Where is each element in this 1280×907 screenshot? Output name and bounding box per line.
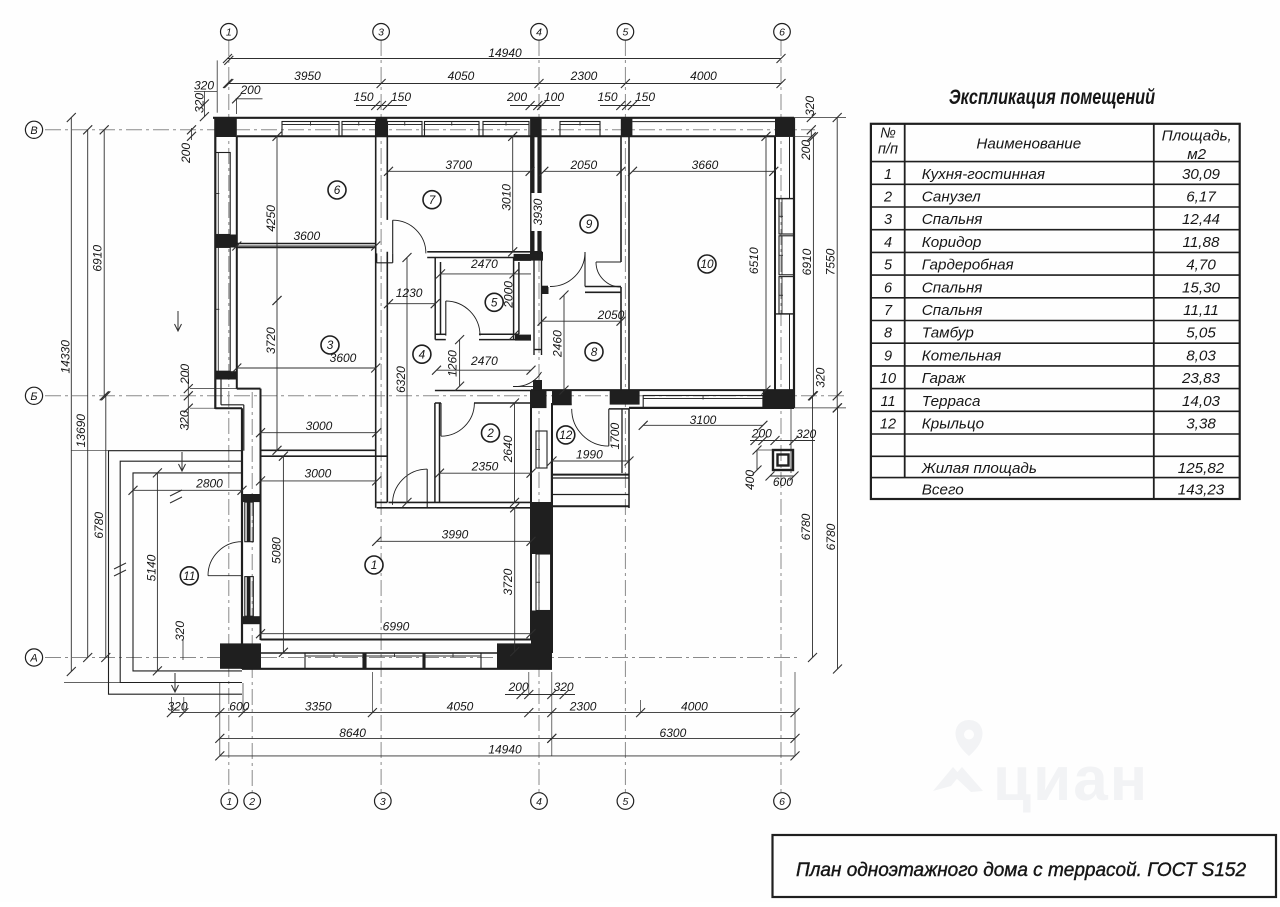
svg-text:4000: 4000 xyxy=(681,700,708,714)
svg-text:4250: 4250 xyxy=(264,205,278,232)
svg-text:5: 5 xyxy=(622,27,628,39)
svg-text:1: 1 xyxy=(371,558,378,572)
svg-text:Спальня: Спальня xyxy=(922,279,983,296)
svg-text:3,38: 3,38 xyxy=(1186,416,1216,433)
svg-text:320: 320 xyxy=(177,410,191,430)
svg-text:Тамбур: Тамбур xyxy=(922,325,974,342)
svg-text:1: 1 xyxy=(226,27,232,39)
svg-text:23,83: 23,83 xyxy=(1181,370,1221,387)
svg-text:9: 9 xyxy=(586,217,593,231)
svg-text:200: 200 xyxy=(506,90,527,104)
svg-text:Санузел: Санузел xyxy=(922,189,981,206)
svg-text:200: 200 xyxy=(179,143,193,164)
svg-text:5140: 5140 xyxy=(144,554,158,581)
svg-text:320: 320 xyxy=(194,79,214,93)
svg-text:6780: 6780 xyxy=(824,523,838,550)
svg-text:320: 320 xyxy=(554,680,574,694)
svg-text:1: 1 xyxy=(884,167,892,183)
svg-text:Б: Б xyxy=(30,391,37,403)
svg-text:План одноэтажного дома с терра: План одноэтажного дома с террасой. ГОСТ … xyxy=(796,860,1247,881)
svg-text:150: 150 xyxy=(391,90,411,104)
svg-text:8: 8 xyxy=(884,326,892,342)
svg-text:5: 5 xyxy=(622,796,628,808)
svg-text:2800: 2800 xyxy=(195,476,223,490)
svg-text:5: 5 xyxy=(491,296,498,310)
svg-text:4050: 4050 xyxy=(448,69,475,83)
svg-text:8640: 8640 xyxy=(339,726,366,740)
svg-text:4: 4 xyxy=(884,235,892,251)
svg-text:Наименование: Наименование xyxy=(976,136,1081,153)
svg-text:7550: 7550 xyxy=(824,248,838,275)
svg-text:3990: 3990 xyxy=(442,528,469,542)
svg-text:4000: 4000 xyxy=(690,69,717,83)
svg-text:2640: 2640 xyxy=(501,435,515,463)
svg-text:10: 10 xyxy=(700,257,714,271)
svg-text:Кухня-гостинная: Кухня-гостинная xyxy=(922,166,1045,183)
svg-text:6320: 6320 xyxy=(394,366,408,393)
svg-text:5: 5 xyxy=(884,258,893,274)
svg-text:14940: 14940 xyxy=(488,46,522,60)
svg-text:4: 4 xyxy=(419,347,426,361)
svg-text:3100: 3100 xyxy=(690,413,717,427)
svg-text:2300: 2300 xyxy=(570,69,598,83)
svg-text:4: 4 xyxy=(536,27,542,39)
svg-text:13690: 13690 xyxy=(74,414,88,448)
svg-text:6300: 6300 xyxy=(660,726,687,740)
svg-text:5,05: 5,05 xyxy=(1186,325,1216,342)
svg-text:9: 9 xyxy=(884,348,892,364)
svg-text:циан: циан xyxy=(993,745,1149,814)
svg-text:143,23: 143,23 xyxy=(1178,482,1225,499)
svg-text:Котельная: Котельная xyxy=(922,347,1001,364)
svg-text:Коридор: Коридор xyxy=(922,234,982,251)
svg-text:В: В xyxy=(30,125,37,137)
svg-text:200: 200 xyxy=(799,140,813,161)
svg-text:6: 6 xyxy=(779,27,785,39)
svg-text:320: 320 xyxy=(173,621,187,641)
svg-text:3000: 3000 xyxy=(305,467,332,481)
svg-text:3: 3 xyxy=(378,27,384,39)
svg-text:320: 320 xyxy=(813,367,827,387)
svg-text:4: 4 xyxy=(536,796,542,808)
svg-text:Крыльцо: Крыльцо xyxy=(922,416,984,433)
svg-text:3: 3 xyxy=(380,796,386,808)
svg-text:Гараж: Гараж xyxy=(922,370,966,387)
svg-text:7: 7 xyxy=(429,193,436,207)
svg-text:320: 320 xyxy=(796,427,816,441)
svg-text:6990: 6990 xyxy=(383,620,410,634)
svg-text:6780: 6780 xyxy=(92,512,106,539)
svg-text:Гардеробная: Гардеробная xyxy=(922,257,1014,274)
svg-text:1700: 1700 xyxy=(608,423,622,450)
svg-text:3: 3 xyxy=(327,338,334,352)
svg-text:30,09: 30,09 xyxy=(1182,166,1221,183)
svg-text:2350: 2350 xyxy=(471,459,499,473)
svg-text:11,11: 11,11 xyxy=(1183,302,1219,319)
svg-text:п/п: п/п xyxy=(878,142,898,158)
svg-text:3700: 3700 xyxy=(445,158,472,172)
svg-text:2300: 2300 xyxy=(569,700,597,714)
svg-text:Жилая площадь: Жилая площадь xyxy=(921,460,1037,477)
svg-text:12,44: 12,44 xyxy=(1182,211,1220,228)
svg-text:Спальня: Спальня xyxy=(922,302,983,319)
svg-text:2: 2 xyxy=(883,190,892,206)
svg-text:150: 150 xyxy=(597,90,617,104)
svg-text:2460: 2460 xyxy=(551,330,565,358)
svg-text:№: № xyxy=(880,126,896,142)
svg-text:3000: 3000 xyxy=(306,419,333,433)
svg-text:12: 12 xyxy=(559,428,573,442)
svg-text:2470: 2470 xyxy=(470,354,498,368)
svg-text:7: 7 xyxy=(884,303,893,319)
svg-text:100: 100 xyxy=(544,90,564,104)
svg-text:1: 1 xyxy=(226,796,232,808)
svg-text:Экспликация помещений: Экспликация помещений xyxy=(949,86,1156,110)
svg-text:8,03: 8,03 xyxy=(1186,347,1216,364)
svg-text:6: 6 xyxy=(334,183,341,197)
svg-text:3350: 3350 xyxy=(305,700,332,714)
svg-text:1230: 1230 xyxy=(396,286,423,300)
svg-text:6910: 6910 xyxy=(91,245,105,272)
svg-text:4,70: 4,70 xyxy=(1186,257,1216,274)
svg-text:150: 150 xyxy=(353,90,373,104)
svg-text:150: 150 xyxy=(635,90,655,104)
svg-text:2050: 2050 xyxy=(569,158,597,172)
svg-text:Всего: Всего xyxy=(922,482,964,499)
svg-text:200: 200 xyxy=(508,680,529,694)
svg-text:600: 600 xyxy=(773,475,793,489)
svg-text:6,17: 6,17 xyxy=(1186,189,1216,206)
svg-text:6: 6 xyxy=(884,280,893,296)
svg-text:15,30: 15,30 xyxy=(1182,279,1221,296)
svg-text:Площадь,: Площадь, xyxy=(1162,128,1232,145)
svg-text:11: 11 xyxy=(880,394,895,410)
svg-text:11: 11 xyxy=(183,569,195,583)
svg-text:3660: 3660 xyxy=(692,158,719,172)
svg-text:А: А xyxy=(29,652,37,664)
svg-text:4050: 4050 xyxy=(447,700,474,714)
svg-text:200: 200 xyxy=(239,83,260,97)
svg-text:3: 3 xyxy=(884,212,892,228)
svg-text:2: 2 xyxy=(248,796,255,808)
svg-text:3950: 3950 xyxy=(294,69,321,83)
svg-text:125,82: 125,82 xyxy=(1178,460,1225,477)
svg-text:3930: 3930 xyxy=(531,198,545,225)
svg-text:5080: 5080 xyxy=(270,537,284,564)
svg-text:1990: 1990 xyxy=(576,447,603,461)
svg-text:10: 10 xyxy=(880,371,896,387)
svg-text:14,03: 14,03 xyxy=(1182,393,1221,410)
svg-text:6: 6 xyxy=(779,796,785,808)
svg-text:2470: 2470 xyxy=(470,257,498,271)
svg-text:3720: 3720 xyxy=(501,568,515,595)
svg-text:6780: 6780 xyxy=(799,513,813,540)
svg-text:3600: 3600 xyxy=(293,229,320,243)
svg-text:Терраса: Терраса xyxy=(922,393,981,410)
svg-text:14940: 14940 xyxy=(488,743,522,757)
svg-text:8: 8 xyxy=(591,345,598,359)
svg-text:600: 600 xyxy=(229,700,249,714)
svg-text:14330: 14330 xyxy=(58,340,72,374)
svg-text:200: 200 xyxy=(751,427,772,441)
svg-text:3720: 3720 xyxy=(264,327,278,354)
svg-text:3010: 3010 xyxy=(500,184,514,211)
svg-text:м2: м2 xyxy=(1187,146,1206,163)
svg-text:11,88: 11,88 xyxy=(1183,234,1220,251)
svg-text:6510: 6510 xyxy=(747,247,761,274)
svg-text:12: 12 xyxy=(880,417,896,433)
svg-text:2050: 2050 xyxy=(597,308,625,322)
svg-text:200: 200 xyxy=(178,364,192,385)
svg-text:Спальня: Спальня xyxy=(922,211,983,228)
svg-text:1260: 1260 xyxy=(446,350,460,377)
svg-text:2: 2 xyxy=(486,426,494,440)
svg-text:6910: 6910 xyxy=(800,248,814,275)
